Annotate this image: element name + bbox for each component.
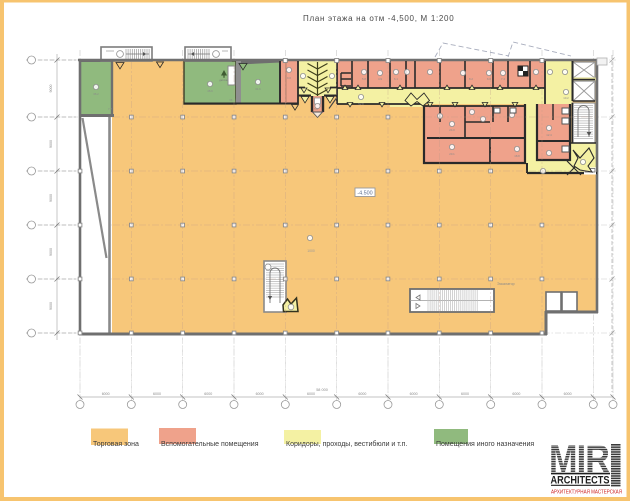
svg-text:20.1: 20.1: [449, 152, 455, 156]
svg-text:5.8: 5.8: [362, 77, 366, 81]
svg-text:9000: 9000: [49, 140, 53, 148]
svg-text:9000: 9000: [49, 248, 53, 256]
svg-text:6000: 6000: [358, 392, 366, 396]
svg-text:18.8: 18.8: [514, 154, 520, 158]
svg-text:7.7: 7.7: [108, 107, 112, 111]
svg-text:4.9: 4.9: [378, 77, 382, 81]
svg-text:Коридоры, проходы, вестибюли и: Коридоры, проходы, вестибюли и т.п.: [286, 440, 407, 448]
svg-text:9000: 9000: [49, 302, 53, 310]
svg-text:lift: lift: [230, 98, 233, 102]
svg-text:24.0: 24.0: [449, 128, 455, 132]
svg-text:6000: 6000: [204, 392, 212, 396]
svg-text:Вспомогательные помещения: Вспомогательные помещения: [161, 441, 259, 448]
svg-text:7.4: 7.4: [501, 77, 505, 81]
svg-text:6000: 6000: [256, 392, 264, 396]
svg-text:6000: 6000: [564, 392, 572, 396]
svg-text:36.2: 36.2: [93, 92, 99, 96]
svg-text:6000: 6000: [512, 392, 520, 396]
svg-text:-4.500: -4.500: [357, 191, 372, 197]
svg-text:План этажа на отм -4,500, М: План этажа на отм -4,500, М 1:200: [303, 14, 454, 23]
svg-text:Помещения иного назначения: Помещения иного назначения: [436, 441, 534, 448]
svg-text:10.2: 10.2: [563, 96, 569, 100]
svg-text:6000: 6000: [102, 392, 110, 396]
svg-text:31.6: 31.6: [255, 87, 261, 91]
svg-text:12.4: 12.4: [546, 133, 552, 137]
svg-text:6.1: 6.1: [394, 77, 398, 81]
svg-text:52.8: 52.8: [358, 102, 364, 106]
svg-text:1000: 1000: [307, 249, 315, 253]
svg-text:9000: 9000: [49, 194, 53, 202]
svg-text:6.6: 6.6: [487, 77, 491, 81]
svg-text:58 000: 58 000: [316, 388, 328, 392]
svg-text:АРХИТЕКТУРНАЯ МАСТЕРСКАЯ: АРХИТЕКТУРНАЯ МАСТЕРСКАЯ: [551, 490, 622, 496]
svg-text:5.2: 5.2: [314, 107, 318, 111]
svg-text:6000: 6000: [461, 392, 469, 396]
svg-text:Эскалатор: Эскалатор: [497, 282, 515, 286]
svg-text:48.9: 48.9: [207, 89, 213, 93]
svg-text:8.2: 8.2: [469, 77, 473, 81]
svg-text:6000: 6000: [307, 392, 315, 396]
svg-text:6000: 6000: [410, 392, 418, 396]
svg-text:9.6: 9.6: [287, 76, 291, 80]
svg-text:Торговая зона: Торговая зона: [93, 441, 139, 448]
svg-text:6000: 6000: [153, 392, 161, 396]
svg-text:9000: 9000: [49, 85, 53, 93]
